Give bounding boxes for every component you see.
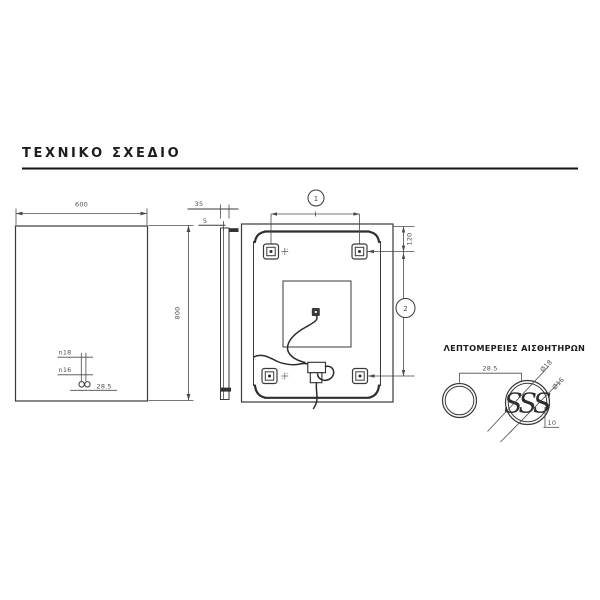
height-dimension: 800 <box>149 226 194 401</box>
sensor-detail-plain-inner <box>445 386 474 415</box>
callout-1-label: 1 <box>314 195 318 203</box>
sensor-hole-2-label: n16 <box>59 366 72 374</box>
sensor-details: ΛΕΠΤΟΜΕΡΕΙΕΣ ΑΙΣΘΗΤΗΡΩΝ SSS 28.5 Ø18 Ø16… <box>443 343 586 442</box>
frame-corner-arc <box>370 232 380 242</box>
glass-thickness-dimension: 5 <box>199 217 226 231</box>
detail-spacing-label: 28.5 <box>482 365 497 373</box>
callout-2-label: 2 <box>403 305 407 313</box>
frame-corner-arc <box>255 232 265 242</box>
page-title: ΤΕΧΝΙΚΟ ΣΧΕΔΙΟ <box>22 146 181 161</box>
page-title-block: ΤΕΧΝΙΚΟ ΣΧΕΔΙΟ <box>22 146 578 169</box>
center-mark-icon <box>281 248 288 255</box>
led-panel-and-wiring <box>254 281 351 409</box>
sensor-hole-leaders: n18 n16 28.5 <box>58 349 118 391</box>
sensor-hole-1-label: n18 <box>59 349 72 357</box>
sensor-spacing-label: 28.5 <box>97 382 112 390</box>
frame-corner-arc <box>370 386 380 398</box>
connector-cable <box>287 316 317 363</box>
driver-box-lower <box>310 373 322 383</box>
center-mark-icon <box>281 373 288 380</box>
glass-thickness-label: 5 <box>203 217 207 225</box>
bracket-spacing-dimension: 1 <box>271 190 360 244</box>
width-dimension-label: 600 <box>75 201 88 209</box>
sensor-hole-1 <box>79 382 84 387</box>
detail-spacing-dimension: 28.5 <box>460 365 522 383</box>
mounting-bracket-top-right <box>352 244 367 259</box>
power-cord <box>314 383 318 409</box>
sensor-hole-2 <box>85 382 90 387</box>
inner-diameter-label: Ø16 <box>551 376 566 392</box>
technical-drawing-page: ΤΕΧΝΙΚΟ ΣΧΕΔΙΟ 600 800 n18 n16 <box>0 0 600 600</box>
width-dimension: 600 <box>16 201 147 226</box>
depth-dimension-label: 35 <box>195 200 204 208</box>
technical-drawing: ΤΕΧΝΙΚΟ ΣΧΕΔΙΟ 600 800 n18 n16 <box>0 0 600 600</box>
outer-diameter-label: Ø18 <box>539 358 554 374</box>
back-view: 1 120 2 <box>242 190 416 409</box>
side-top-frame-tab <box>229 228 239 232</box>
bracket-offset-dimension: 120 <box>368 227 415 254</box>
frame-corner-arc <box>255 386 265 398</box>
sensor-details-heading: ΛΕΠΤΟΜΕΡΕΙΕΣ ΑΙΣΘΗΤΗΡΩΝ <box>444 343 586 353</box>
cable-connector-pin <box>315 311 317 313</box>
front-view: 600 800 n18 n16 28.5 <box>16 201 194 402</box>
edge-offset-label: 10 <box>548 419 557 427</box>
mounting-bracket-bottom-right <box>353 369 368 384</box>
mounting-bracket-bottom-left <box>262 369 277 384</box>
supply-cable <box>254 355 310 364</box>
mounting-bracket-top-left <box>264 244 279 259</box>
bracket-offset-label: 120 <box>406 232 414 245</box>
driver-box <box>308 362 326 372</box>
height-dimension-label: 800 <box>174 306 182 319</box>
mirror-side-outline <box>221 228 230 400</box>
sensor-detail-plain-outer <box>443 384 477 418</box>
depth-dimension: 35 <box>188 200 239 219</box>
side-bottom-frame-tab <box>221 388 231 392</box>
bracket-vertical-dimension: 2 <box>368 252 415 378</box>
side-view: 35 5 <box>188 200 239 400</box>
